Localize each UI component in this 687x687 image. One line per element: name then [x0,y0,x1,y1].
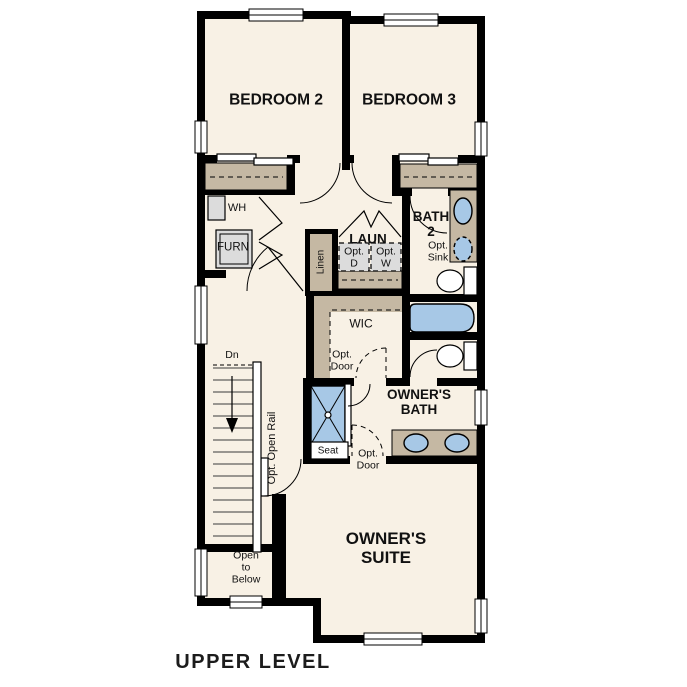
wic-opt-door-label: Opt. Door [331,349,354,373]
linen-label: Linen [315,250,326,274]
level-title: UPPER LEVEL [175,651,330,673]
owners-toilet [437,345,463,367]
bath2-opt-sink [454,237,472,261]
bath2-toilet-tank [464,267,477,295]
wic-label: WIC [349,317,372,330]
bath2-sink [454,198,472,224]
opt-sink-label: Opt. Sink [428,240,448,264]
opt-washer-label: Opt. W [376,246,396,270]
shower-seat-label: Seat [318,445,339,456]
stair-rail [253,362,261,552]
owners-bath-label: OWNER'S BATH [387,387,451,417]
floor-plan-drawing [0,0,687,687]
bedroom2-closet-door [217,154,256,161]
furnace-label: FURN [217,242,249,255]
bath-opt-door-label: Opt. Door [357,448,380,472]
owners-toilet-tank [464,342,477,370]
bedroom2-label: BEDROOM 2 [229,91,323,108]
stairs-down-label: Dn [225,350,238,362]
owners-suite-label: OWNER'S SUITE [346,529,427,567]
open-to-below-label: Open to Below [232,550,261,585]
bath2-label: BATH 2 [413,209,450,239]
water-heater-label: WH [228,202,246,214]
owners-sink-right [445,434,469,452]
water-heater [208,196,225,220]
bathtub [410,304,474,332]
owners-sink-left [404,434,428,452]
bedroom3-label: BEDROOM 3 [362,91,456,108]
opt-open-rail-label: Opt. Open Rail [266,412,278,485]
opt-dryer-label: Opt. D [344,246,364,270]
floor-plan-page: BEDROOM 2 BEDROOM 3 WH FURN LAUN Opt. D … [0,0,687,687]
shower-glass [345,384,351,446]
bath2-toilet [437,270,463,292]
bedroom3-closet-door [399,154,429,161]
